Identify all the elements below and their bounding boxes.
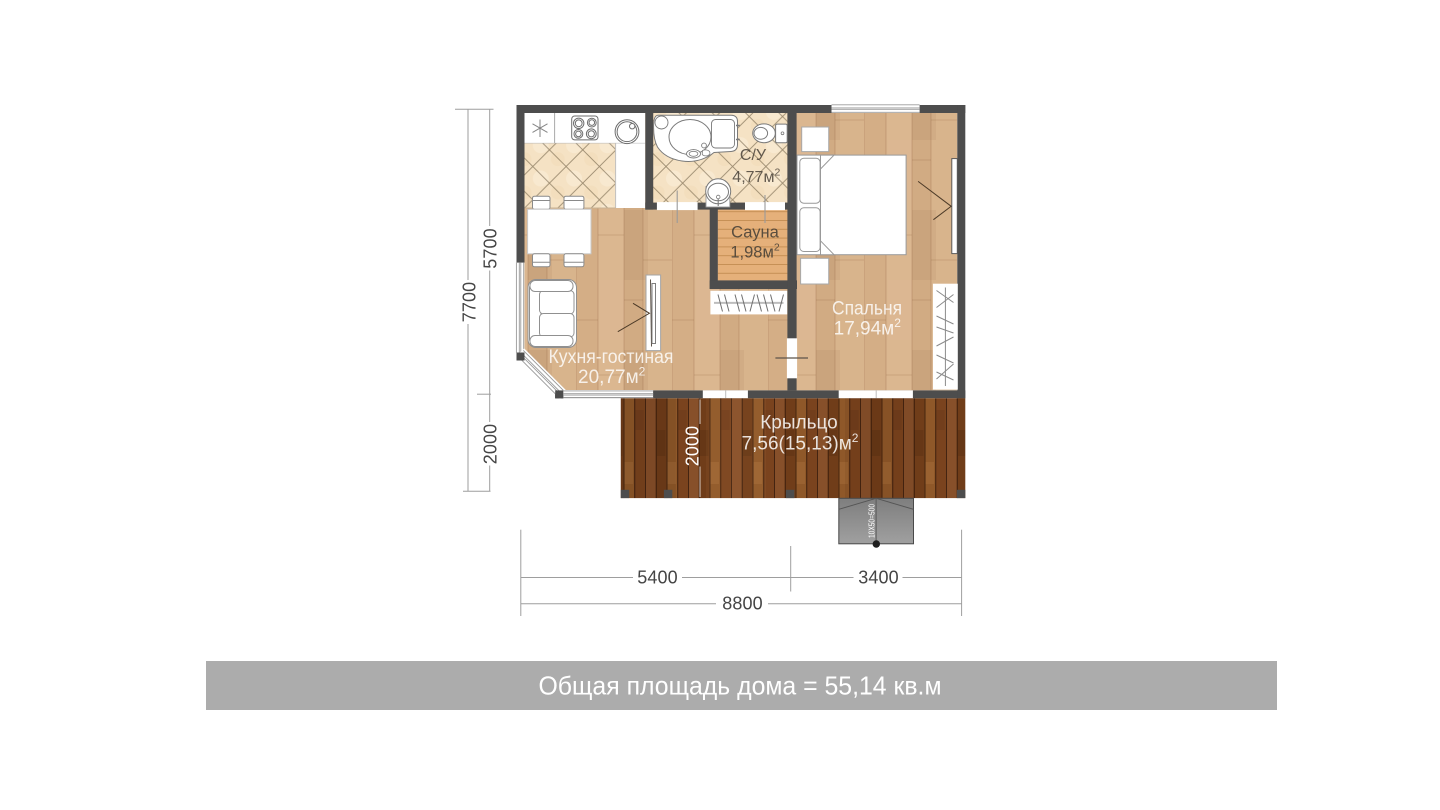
svg-text:8800: 8800 [722,594,762,614]
svg-text:3400: 3400 [858,568,898,588]
svg-text:Сауна: Сауна [731,224,779,242]
svg-text:17,94м2: 17,94м2 [834,316,902,340]
svg-text:Крыльцо: Крыльцо [760,413,838,434]
svg-text:Спальня: Спальня [832,299,902,320]
svg-text:5700: 5700 [481,228,501,268]
svg-text:С/У: С/У [740,147,767,164]
svg-text:Общая площадь дома = 55,14 кв.: Общая площадь дома = 55,14 кв.м [539,671,942,701]
svg-text:7700: 7700 [460,282,480,322]
svg-text:7,56(15,13)м2: 7,56(15,13)м2 [742,431,859,455]
svg-text:10Х50=500: 10Х50=500 [867,504,876,538]
svg-text:1,98м2: 1,98м2 [730,242,779,262]
svg-text:Кухня-гостиная: Кухня-гостиная [549,347,674,368]
svg-text:5400: 5400 [637,568,677,588]
svg-text:2000: 2000 [683,426,703,466]
svg-text:4,77м2: 4,77м2 [732,167,780,187]
svg-text:20,77м2: 20,77м2 [578,365,646,389]
svg-text:2000: 2000 [481,424,501,464]
